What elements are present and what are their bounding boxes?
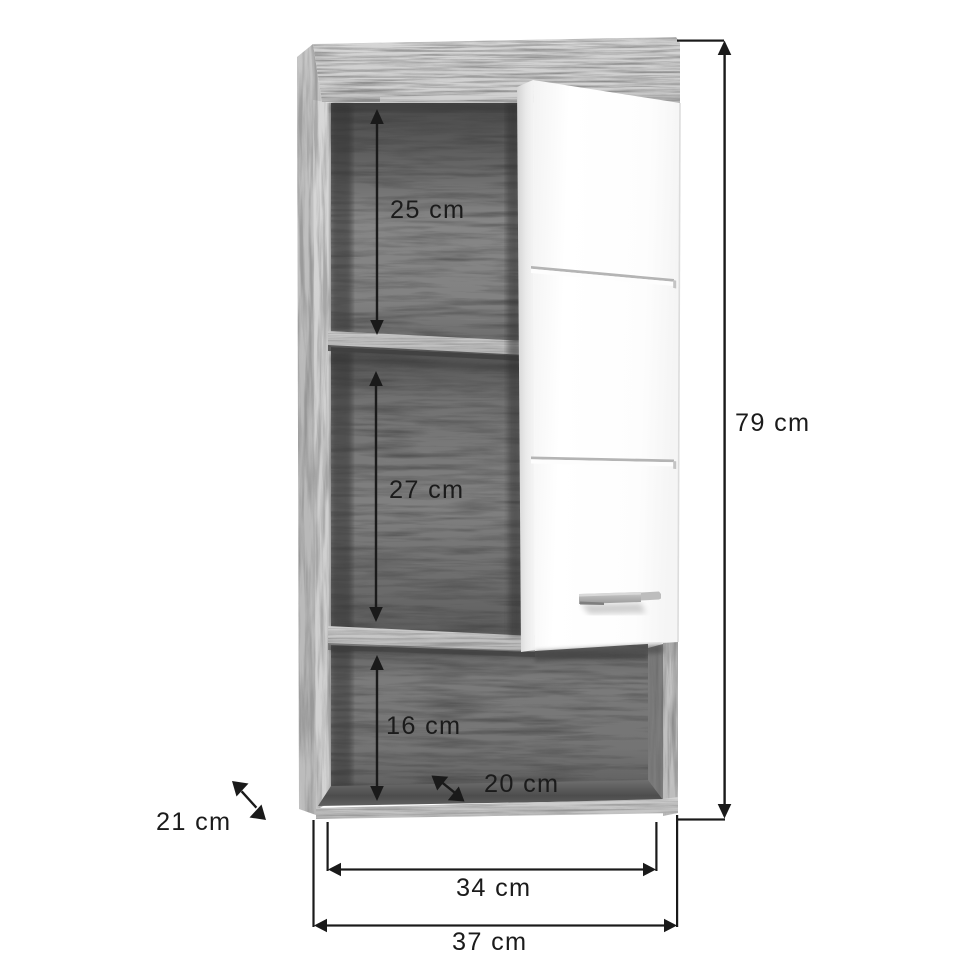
svg-text:37 cm: 37 cm: [452, 928, 527, 956]
svg-text:34 cm: 34 cm: [456, 874, 531, 902]
svg-text:27 cm: 27 cm: [389, 476, 464, 504]
svg-text:79 cm: 79 cm: [735, 409, 810, 437]
svg-text:25 cm: 25 cm: [390, 196, 465, 224]
svg-text:20 cm: 20 cm: [484, 770, 559, 798]
svg-text:16 cm: 16 cm: [386, 712, 461, 740]
svg-text:21 cm: 21 cm: [156, 808, 231, 836]
